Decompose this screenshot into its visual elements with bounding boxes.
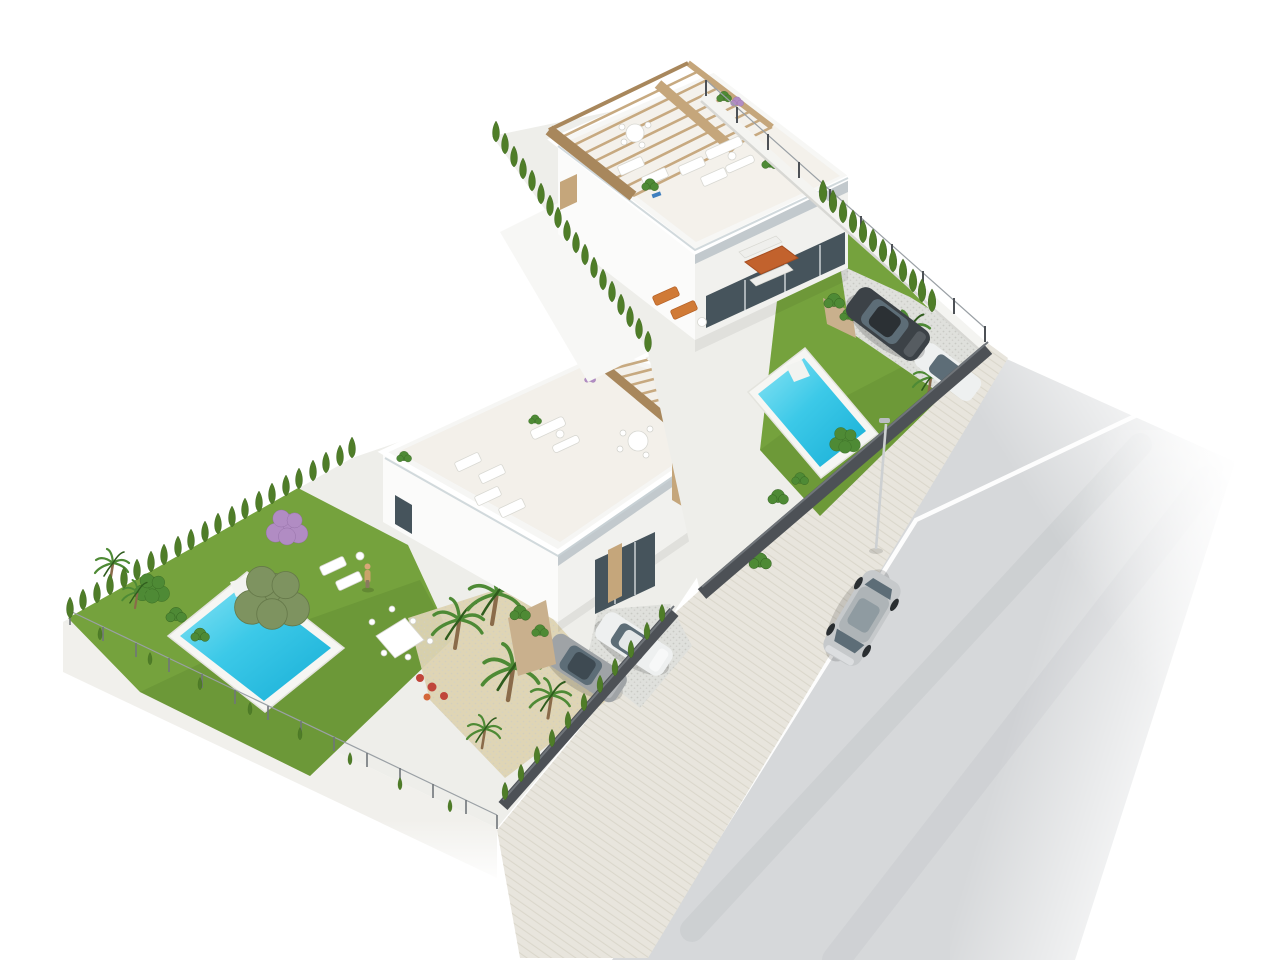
side-table	[698, 318, 707, 327]
scene-svg	[0, 0, 1280, 960]
road-fade-right	[950, 430, 1280, 960]
lamp-head	[879, 418, 890, 423]
render-canvas	[0, 0, 1280, 960]
coffee-table	[556, 430, 564, 438]
roof-dining-table	[626, 124, 644, 142]
side-table	[356, 552, 364, 560]
coffee-table	[728, 152, 736, 160]
lower-villa-wood-door	[608, 543, 622, 603]
roof-dining-table	[628, 431, 648, 451]
